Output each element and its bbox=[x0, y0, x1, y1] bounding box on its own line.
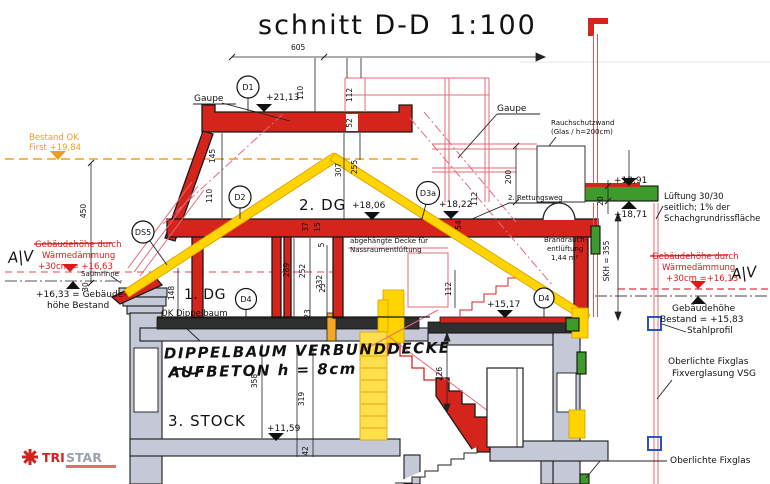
rettungsweg-arch bbox=[543, 203, 575, 220]
revision-mark-right: A|Ⅴ bbox=[729, 262, 759, 283]
dim-200: 200 bbox=[504, 170, 513, 185]
drawing-scale: 1:100 bbox=[449, 10, 537, 41]
dim-42: 42 bbox=[301, 446, 310, 456]
elevation-marker-2113 bbox=[256, 104, 272, 112]
dim-255: 255 bbox=[350, 160, 359, 175]
oberlichte-label-2: Oberlichte Fixglas bbox=[670, 456, 751, 466]
abgehaengte-decke-label-1: abgehängte Decke für bbox=[350, 237, 428, 245]
suspended-ceiling-outline bbox=[408, 253, 448, 307]
chimney-mark bbox=[588, 18, 608, 36]
wall-patch-yellow bbox=[569, 410, 585, 438]
gaupe-left-label: Gaupe bbox=[194, 94, 224, 104]
logo-text-tri: TRI bbox=[42, 450, 65, 465]
bestand-right-label-1: Gebäudehöhe bbox=[672, 304, 736, 314]
elevation-marker-1871 bbox=[621, 201, 637, 209]
handwritten-deck-note-1: DIPPELBAUM VERBUNDDECKE bbox=[164, 339, 451, 363]
dim-23-a: 23 bbox=[318, 283, 327, 293]
dim-226: 226 bbox=[435, 367, 444, 382]
gaupe-roof-slab bbox=[202, 105, 412, 132]
daemmung-right-label-1: Gebäudehöhe durch bbox=[652, 252, 739, 262]
dim-15: 15 bbox=[313, 222, 322, 232]
room-label-2dg: 2. DG bbox=[299, 196, 346, 214]
elevation-2113: +21,13 bbox=[266, 93, 299, 103]
elevation-1159: +11,59 bbox=[267, 424, 301, 434]
duct-drop bbox=[378, 300, 388, 332]
first-bestand-label-2: First +19,84 bbox=[29, 143, 81, 153]
detail-label-d4-left: D4 bbox=[240, 295, 251, 304]
shaft-glass-lines bbox=[594, 34, 598, 317]
daemmung-left-label-2: Wärmedämmung bbox=[42, 251, 115, 261]
dim-37: 37 bbox=[301, 222, 310, 232]
detail-label-d3a: D3a bbox=[420, 189, 436, 198]
dim-450: 450 bbox=[79, 204, 88, 219]
section-drawing: D1 D2 D3a D4 D4 DS5 schnitt D-D 1:100 2.… bbox=[0, 0, 770, 484]
rauchschutzwand-label-2: (Glas / h=200cm) bbox=[551, 128, 613, 136]
dim-52: 52 bbox=[345, 118, 354, 128]
landing-green-cap bbox=[566, 318, 579, 331]
detail-label-d2: D2 bbox=[234, 193, 245, 202]
daemmung-left-label-3: +30cm = +16,63 bbox=[38, 262, 113, 272]
elevation-1891: +18,91 bbox=[614, 176, 647, 186]
daemmung-right-label-3: +30cm =+16,13 bbox=[666, 274, 738, 284]
detail-label-d4-right: D4 bbox=[538, 294, 549, 303]
star-icon bbox=[22, 449, 38, 465]
dim-289: 289 bbox=[282, 263, 291, 278]
dim-23-b: 23 bbox=[303, 309, 312, 319]
stair-flight-lower bbox=[436, 378, 490, 452]
dim-110-top: 110 bbox=[296, 86, 305, 101]
dim-112-top: 112 bbox=[345, 88, 354, 103]
dim-5: 5 bbox=[317, 242, 326, 247]
dim-54: 54 bbox=[454, 220, 463, 230]
dim-605: 605 bbox=[291, 43, 306, 52]
brandrauch-label-3: 1,44 m² bbox=[551, 254, 579, 262]
daemmung-right-label-2: Wärmedämmung bbox=[662, 263, 735, 273]
shaft-green-window bbox=[591, 226, 600, 254]
dim-145: 145 bbox=[208, 149, 217, 164]
abgehaengte-decke-label-2: Nassraumentlüftung bbox=[350, 246, 422, 254]
bestand-right-label-2: Bestand = +15,83 bbox=[660, 315, 743, 325]
logo-text-star: STAR bbox=[66, 450, 102, 465]
dim-30: 30 bbox=[81, 282, 90, 292]
rettungsweg-label: 2. Rettungsweg bbox=[508, 194, 563, 202]
first-bestand-label-1: Bestand OK bbox=[29, 133, 79, 143]
dim-112-stair: 112 bbox=[444, 282, 453, 297]
oberlichte-label-1b: Fixverglasung VSG bbox=[672, 369, 756, 379]
left-wall-window bbox=[134, 348, 158, 412]
lueftung-label-3: Schachgrundrissfläche bbox=[664, 214, 760, 224]
landing-deck-dark bbox=[428, 322, 580, 333]
dim-112-gaupe: 112 bbox=[470, 192, 479, 207]
tristar-logo: TRI STAR bbox=[22, 449, 116, 468]
elevation-marker-1633 bbox=[66, 281, 80, 289]
dim-148: 148 bbox=[167, 286, 176, 301]
door-opening bbox=[487, 368, 523, 447]
wall-2dg-b bbox=[272, 237, 281, 318]
dim-110-d2: 110 bbox=[205, 189, 214, 204]
oberlichte-label-1a: Oberlichte Fixglas bbox=[668, 357, 749, 367]
stahlprofil-label: Stahlprofil bbox=[687, 326, 733, 336]
revision-mark-left: A|Ⅴ bbox=[6, 247, 36, 267]
elevation-1871: +18,71 bbox=[614, 210, 647, 220]
wall-green-cap-1 bbox=[577, 352, 586, 374]
gaupe-right-label: Gaupe bbox=[497, 104, 527, 114]
drawing-title: schnitt D-D bbox=[258, 10, 432, 41]
handwritten-notes: DIPPELBAUM VERBUNDDECKE AUFBETON h = 8cm bbox=[164, 339, 451, 382]
daemmung-left-label-1: Gebäudehöhe durch bbox=[35, 240, 122, 250]
dim-skh: SKH = 355 bbox=[602, 240, 611, 281]
lueftung-label-1: Lüftung 30/30 bbox=[664, 192, 724, 202]
right-wall-window bbox=[557, 373, 576, 412]
elevation-1822: +18,22 bbox=[439, 200, 472, 210]
dim-20: 20 bbox=[596, 196, 605, 206]
handwritten-deck-note-2: AUFBETON h = 8cm bbox=[167, 360, 357, 382]
brandrauch-label-2: entlüftung bbox=[547, 245, 583, 253]
dim-319: 319 bbox=[297, 392, 306, 407]
brandrauch-label-1: Brandrauch- bbox=[544, 236, 588, 244]
elevation-marker-1822 bbox=[443, 211, 459, 219]
flat-roof-green-bar bbox=[582, 186, 658, 201]
wall-2dg-d bbox=[333, 237, 343, 318]
elevation-1517: +15,17 bbox=[487, 300, 520, 310]
dim-307: 307 bbox=[334, 163, 343, 178]
elevation-1806: +18,06 bbox=[352, 201, 386, 211]
detail-label-d1: D1 bbox=[242, 83, 253, 92]
dim-252: 252 bbox=[298, 264, 307, 279]
lueftung-label-2: seitlich; 1% der bbox=[664, 203, 731, 213]
logo-tagline-bar bbox=[66, 465, 116, 468]
room-label-1dg: 1. DG bbox=[184, 287, 226, 303]
right-wall-stub bbox=[541, 461, 553, 484]
bestand-left-label-2: höhe Bestand bbox=[47, 301, 109, 311]
ok-dippelbaum-label: OK Dippelbaum bbox=[161, 309, 228, 319]
rauchschutzwand-label-1: Rauchschutzwand bbox=[551, 119, 614, 127]
room-label-3stock: 3. STOCK bbox=[168, 412, 246, 430]
floor-slab-3stock bbox=[130, 439, 400, 456]
elevation-marker-1583 bbox=[691, 296, 706, 304]
detail-label-ds5: DS5 bbox=[135, 228, 151, 237]
